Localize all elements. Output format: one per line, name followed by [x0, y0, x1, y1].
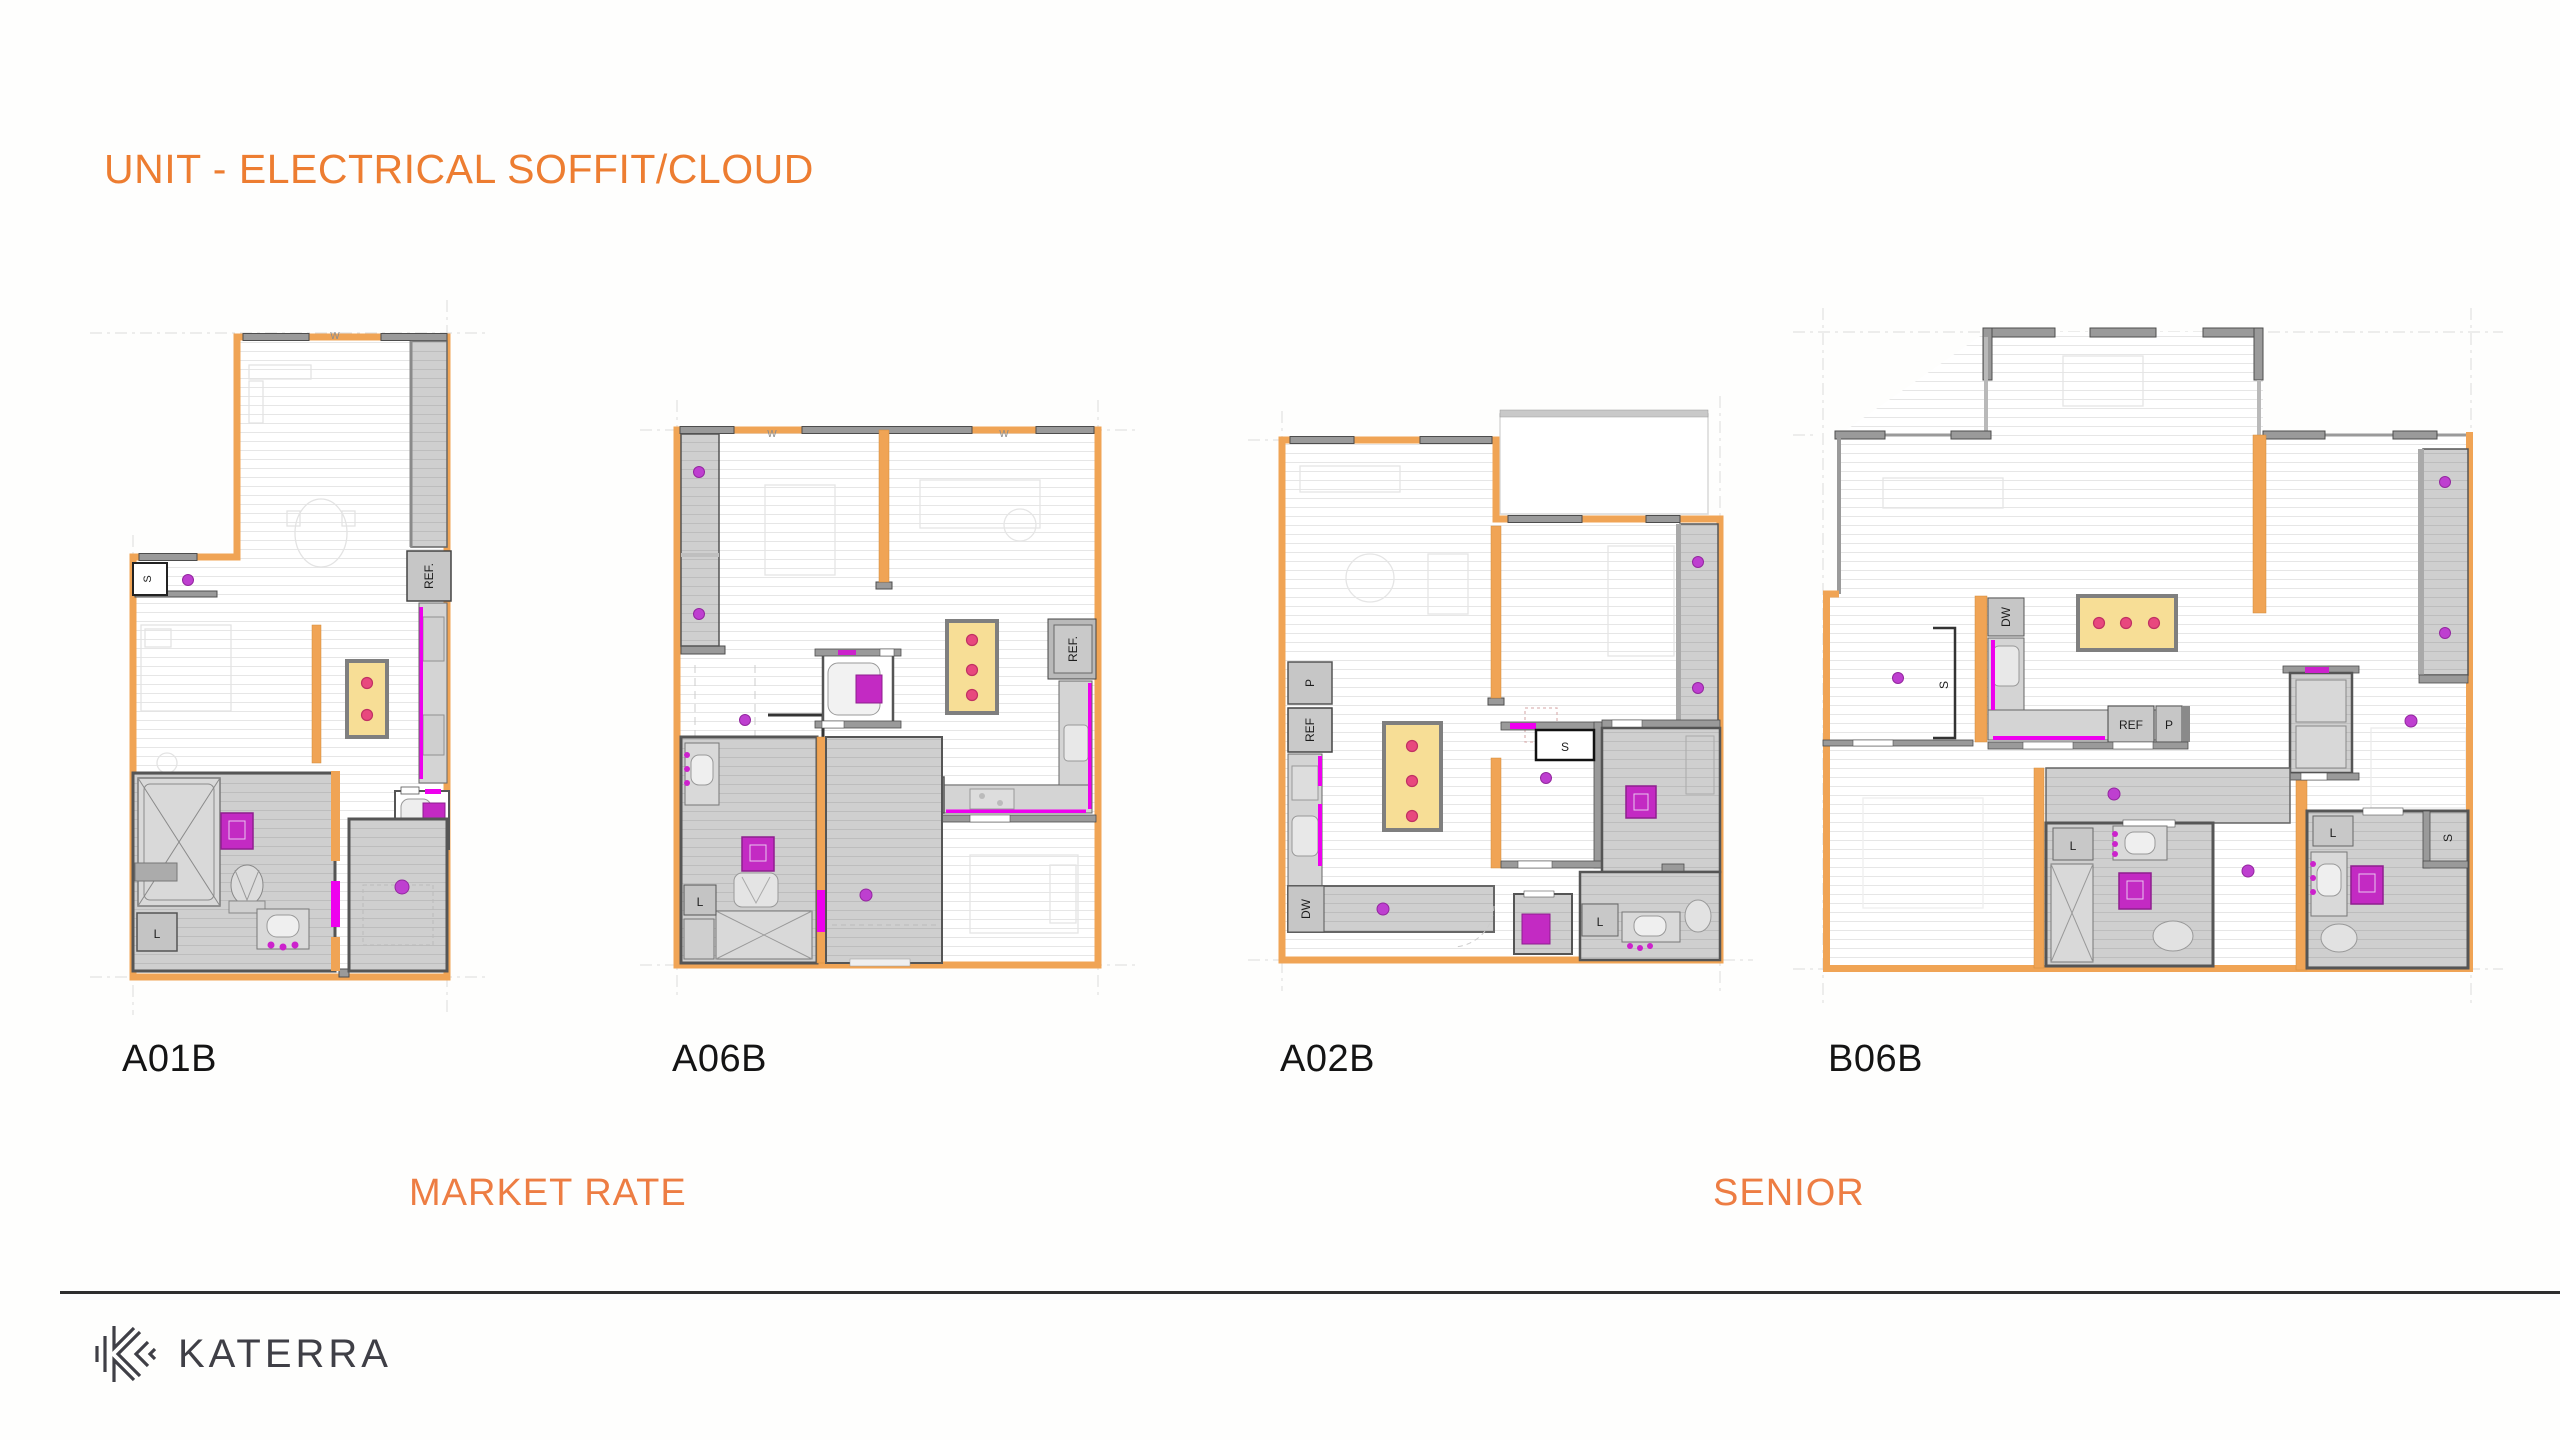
floor-plan-b06b: S DW REF P	[1823, 328, 2475, 977]
laundry-room	[1514, 891, 1572, 954]
window-label: W	[767, 429, 777, 440]
soffit-light	[2121, 618, 2132, 629]
electrical-strip	[1088, 683, 1092, 809]
ceiling-light-dot	[1893, 673, 1904, 684]
counter	[135, 863, 177, 881]
soffit-light	[1407, 811, 1418, 822]
bathroom: L	[681, 737, 817, 963]
toilet	[734, 873, 778, 907]
plan-name-a02b: A02B	[1280, 1038, 1375, 1081]
sink-vanity	[2310, 852, 2347, 916]
ceiling-light-dot	[2242, 865, 2254, 877]
kitchen-wall-strip	[411, 341, 447, 547]
soffit-light	[967, 690, 978, 701]
soffit-light	[2149, 618, 2160, 629]
entry-room	[826, 737, 942, 966]
katerra-logo: KATERRA	[94, 1322, 392, 1386]
washer-box	[221, 813, 253, 849]
laundry-label: L	[697, 895, 704, 909]
electrical-strip	[1991, 640, 1995, 710]
entry-room	[349, 819, 447, 971]
washer-box	[1522, 914, 1550, 944]
washer-box	[2351, 866, 2383, 904]
closet-strip	[2418, 449, 2468, 683]
floor-plan-a02b-drawing: P REF DW	[1278, 436, 1724, 964]
footer-divider	[60, 1291, 2560, 1294]
ceiling-light-dot	[740, 715, 751, 726]
window-label: W	[999, 429, 1009, 440]
washer-box	[1626, 786, 1656, 818]
bathroom-lower: L	[1580, 872, 1720, 960]
interior-wall-orange	[331, 937, 340, 971]
soffit-light	[967, 665, 978, 676]
soffit-light	[1407, 741, 1418, 752]
toilet	[2153, 921, 2193, 951]
floor-plan-b06b-drawing: S DW REF P	[1823, 328, 2475, 977]
pantry-label: P	[1303, 679, 1317, 687]
ceiling-light-dot	[2108, 788, 2120, 800]
ceiling-light-dot	[860, 889, 872, 901]
electrical-strip	[1318, 756, 1322, 786]
bathroom-right: L S	[2307, 808, 2468, 968]
section-label-senior: SENIOR	[1713, 1172, 1865, 1215]
ceiling-light-dot	[395, 880, 409, 894]
washer-box	[856, 675, 882, 703]
window-label: W	[330, 331, 340, 342]
toilet	[1685, 900, 1711, 932]
laundry-label: L	[154, 927, 161, 941]
ceiling-light-dot	[2440, 628, 2451, 639]
bathroom-left: L	[2046, 820, 2213, 966]
katerra-logo-text: KATERRA	[178, 1332, 392, 1377]
appliance-closet	[2283, 666, 2359, 780]
ceiling-light-dot	[1377, 903, 1389, 915]
page-title: UNIT - ELECTRICAL SOFFIT/CLOUD	[104, 146, 814, 193]
interior-wall-orange	[1491, 758, 1501, 868]
toilet-room	[815, 649, 901, 728]
section-label-market-rate: MARKET RATE	[409, 1172, 687, 1215]
laundry-label: L	[2330, 826, 2337, 840]
plan-name-b06b: B06B	[1828, 1038, 1923, 1081]
floor-plan-a02b: P REF DW	[1278, 436, 1724, 964]
ceiling-light-dot	[1693, 683, 1704, 694]
electrical-strip	[331, 881, 340, 927]
toilet	[2321, 924, 2357, 952]
ceiling-light-dot	[694, 609, 705, 620]
washer-box	[742, 837, 774, 871]
electrical-strip	[1318, 804, 1322, 866]
laundry-label: L	[1597, 915, 1604, 929]
electrical-strip	[425, 789, 441, 794]
washer-box	[2119, 873, 2151, 909]
ref-label: REF.	[1066, 636, 1080, 662]
ref-label: REF	[2119, 718, 2143, 732]
plan-name-a01b: A01B	[122, 1038, 217, 1081]
ref-label: REF.	[422, 563, 436, 589]
shelf-label: S	[1937, 681, 1951, 689]
interior-wall-orange	[1491, 526, 1501, 698]
electrical-soffit	[2078, 596, 2176, 650]
electrical-soffit	[347, 661, 387, 737]
laundry-label: L	[2070, 839, 2077, 853]
slide-canvas: UNIT - ELECTRICAL SOFFIT/CLOUD	[0, 0, 2560, 1440]
electrical-strip	[1510, 723, 1536, 729]
ref-label: REF	[1303, 718, 1317, 742]
dishwasher-label: DW	[1299, 898, 1313, 919]
pantry-label: P	[2165, 718, 2173, 732]
soffit-light	[2094, 618, 2105, 629]
electrical-strip	[817, 890, 826, 932]
adjacent-unit-faint	[1500, 410, 1708, 514]
floor-plan-a06b-drawing: W W S	[670, 425, 1105, 970]
electrical-soffit	[1384, 723, 1441, 830]
soffit-light	[967, 635, 978, 646]
sink-vanity	[2112, 826, 2167, 860]
floor-plan-a01b: W REF. S	[125, 325, 455, 985]
soffit-light	[362, 678, 373, 689]
electrical-strip	[1993, 736, 2105, 740]
electrical-soffit	[947, 621, 997, 713]
bathtub	[716, 911, 812, 959]
ceiling-light-dot	[694, 467, 705, 478]
electrical-strip	[2305, 667, 2329, 673]
bathroom-upper	[1602, 720, 1720, 872]
bathtub	[2051, 864, 2093, 962]
dishwasher-label: DW	[1999, 606, 2013, 627]
closet-strip	[681, 434, 719, 646]
katerra-logo-mark	[94, 1322, 160, 1386]
bathroom: L	[133, 773, 335, 971]
electrical-strip	[838, 650, 856, 655]
electrical-strip	[946, 810, 1086, 814]
electrical-strip	[420, 607, 424, 779]
ceiling-light-dot	[2440, 477, 2451, 488]
ceiling-light-dot	[183, 575, 194, 586]
interior-wall-orange	[879, 430, 889, 582]
ceiling-light-dot	[1541, 773, 1552, 784]
interior-wall-orange	[312, 625, 321, 763]
shelf-label: S	[1561, 740, 1569, 754]
hallway	[2046, 768, 2290, 823]
soffit-light	[1407, 776, 1418, 787]
sink-vanity	[257, 909, 309, 951]
shelf-label: S	[2441, 834, 2455, 842]
kitchen-counter	[419, 603, 447, 783]
soffit-light	[362, 710, 373, 721]
closet-strip	[1676, 524, 1718, 722]
floor-plan-a06b: W W S	[670, 425, 1105, 970]
ceiling-light-dot	[2405, 715, 2417, 727]
floor-plan-a01b-drawing: W REF. S	[125, 325, 455, 985]
interior-wall-orange	[331, 771, 340, 861]
plan-name-a06b: A06B	[672, 1038, 767, 1081]
ceiling-light-dot	[1693, 557, 1704, 568]
shelf-label: S	[142, 575, 154, 582]
